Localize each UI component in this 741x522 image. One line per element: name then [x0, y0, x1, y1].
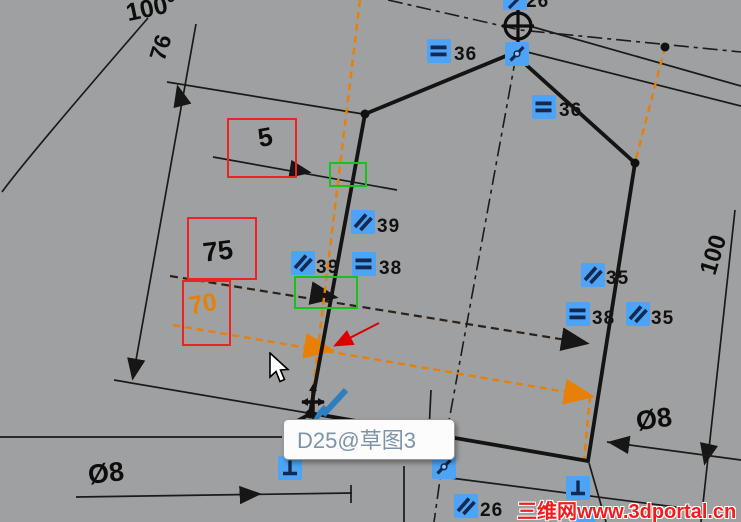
- coincident-constraint-icon: [505, 42, 529, 66]
- highlight-box-dim70: [182, 280, 231, 346]
- drag-dimension-icon: [299, 373, 355, 425]
- equal-constraint-icon: [566, 302, 590, 326]
- highlight-box-arrow-mid: [294, 276, 358, 309]
- parallel-constraint-badge[interactable]: [351, 210, 375, 234]
- dia8-left-dim-line: [76, 493, 352, 497]
- parallel-constraint-icon: [454, 494, 478, 518]
- parallel-constraint-icon: [626, 302, 650, 326]
- highlight-box-arrow-top: [329, 162, 367, 187]
- watermark: 三维网www.3dportal.cn: [517, 495, 736, 522]
- parallel-constraint-badge[interactable]: [291, 251, 315, 275]
- parallel-constraint-icon: [351, 210, 375, 234]
- highlight-box-dim5: [227, 118, 297, 178]
- equal-constraint-badge[interactable]: [566, 302, 590, 326]
- clipped-constraint-badge[interactable]: [503, 0, 527, 10]
- parallel-constraint-icon: [291, 251, 315, 275]
- construction-line-left: [310, 0, 360, 414]
- dimension-dia8-left-label[interactable]: Ø8: [86, 456, 125, 491]
- clipped-constraint-icon: [503, 0, 527, 10]
- parallel-constraint-badge[interactable]: [581, 263, 605, 287]
- equal-constraint-icon: [427, 39, 451, 63]
- angle-dimension-arc: [2, 18, 148, 192]
- equal-constraint-icon: [352, 252, 376, 276]
- dimension-dia8-right-label[interactable]: Ø8: [634, 402, 674, 438]
- parallel-constraint-badge[interactable]: [626, 302, 650, 326]
- extension-line: [167, 82, 363, 114]
- parallel-constraint-icon: [581, 263, 605, 287]
- dimension-tooltip: D25@草图3: [283, 419, 455, 460]
- equal-constraint-badge[interactable]: [427, 39, 451, 63]
- equal-constraint-icon: [532, 95, 556, 119]
- mouse-cursor-icon: [269, 352, 291, 384]
- annotation-arrow: [336, 323, 379, 345]
- extension-line: [527, 52, 741, 106]
- extension-line: [114, 380, 308, 413]
- highlight-box-dim75: [187, 217, 257, 280]
- dim-70-line-selected: [173, 325, 590, 396]
- dim-75-line[interactable]: [170, 276, 585, 343]
- equal-constraint-badge[interactable]: [532, 95, 556, 119]
- extension-line: [533, 27, 741, 86]
- parallel-constraint-badge[interactable]: [454, 494, 478, 518]
- cad-viewport[interactable]: 36 36 39 39 38 35 38 35 26 26: [0, 0, 741, 522]
- coincident-constraint-badge[interactable]: [505, 42, 529, 66]
- equal-constraint-badge[interactable]: [352, 252, 376, 276]
